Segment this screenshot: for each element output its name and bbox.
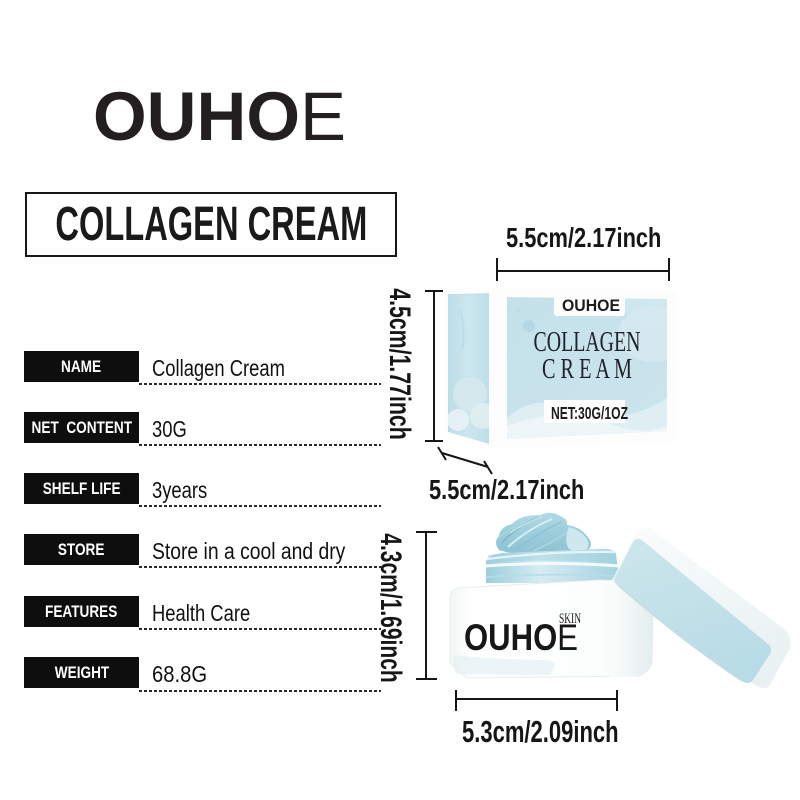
svg-text:OUHOE: OUHOE: [464, 617, 578, 658]
svg-text:C R E A M: C R E A M: [542, 353, 632, 385]
svg-text:NET:30G/1OZ: NET:30G/1OZ: [551, 403, 628, 423]
svg-text:OUHOE: OUHOE: [562, 296, 620, 315]
